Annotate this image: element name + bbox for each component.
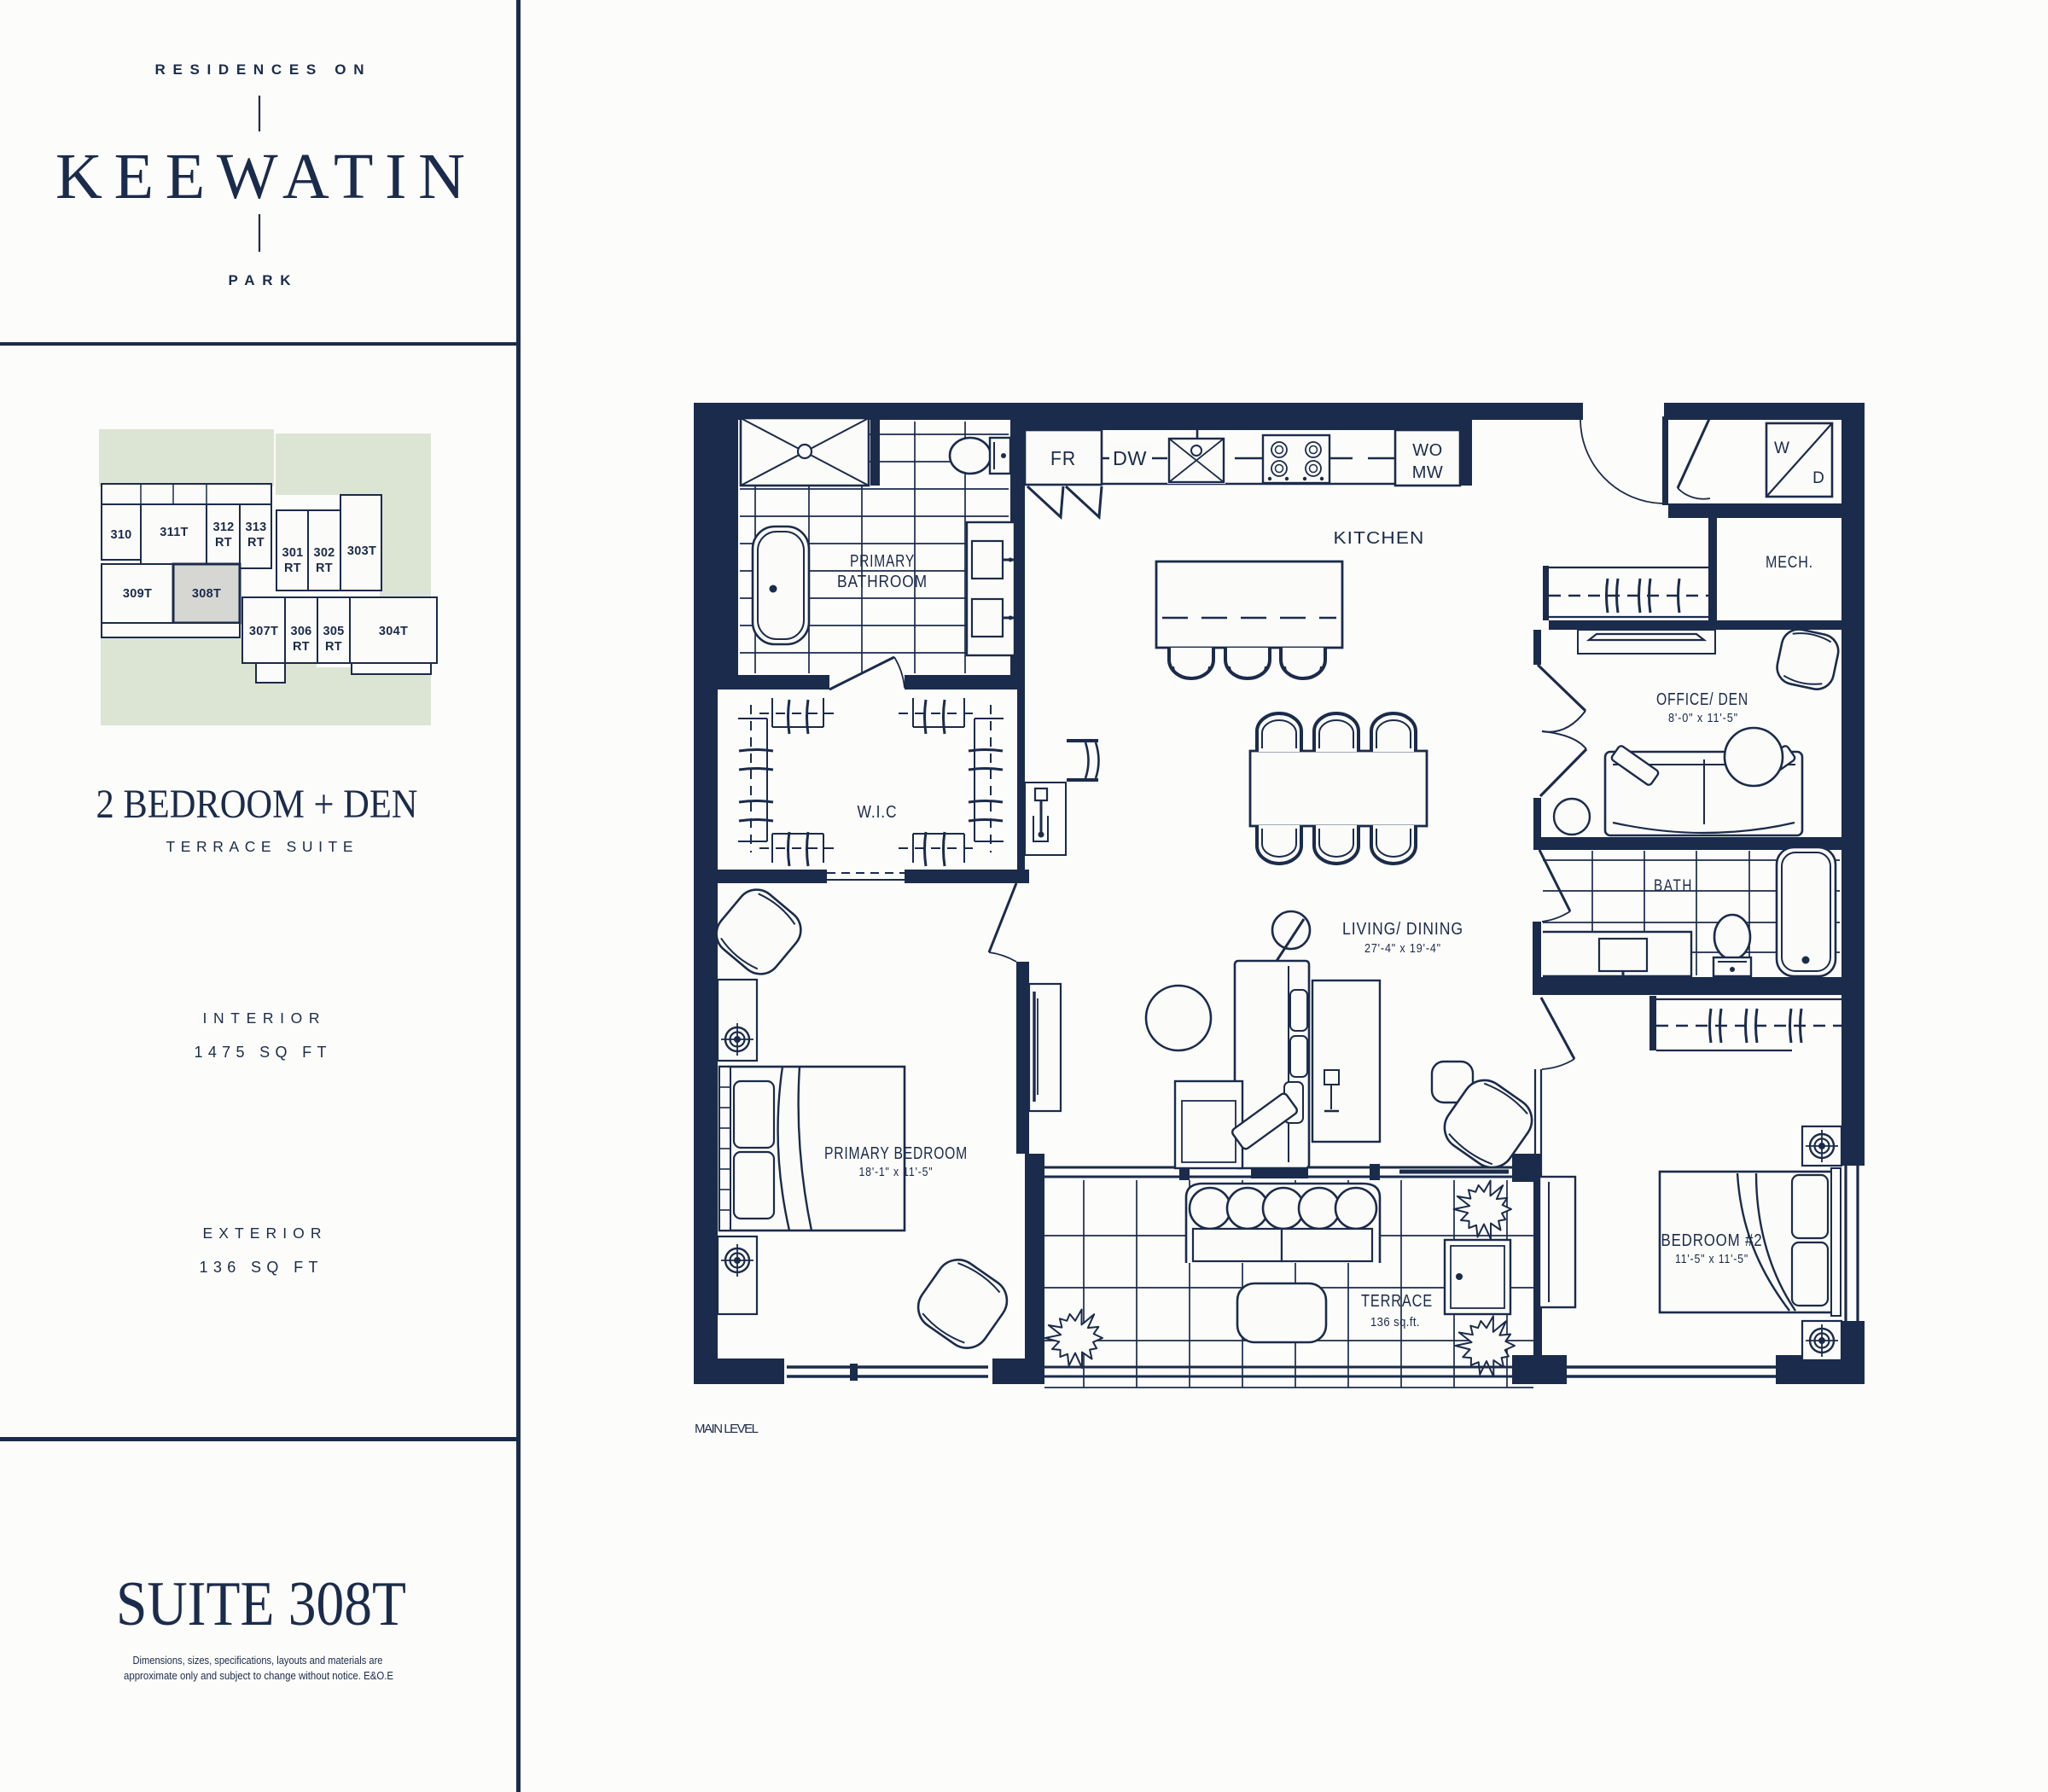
svg-text:303T: 303T [347,544,376,558]
svg-text:TERRACE: TERRACE [1361,1292,1433,1311]
svg-text:MW: MW [1412,463,1444,482]
svg-text:308T: 308T [192,587,221,601]
svg-text:W: W [1774,439,1789,457]
svg-text:SUITE 308T: SUITE 308T [116,1569,406,1639]
svg-text:BEDROOM #2: BEDROOM #2 [1661,1231,1763,1250]
svg-text:301: 301 [282,546,303,560]
svg-text:RT: RT [247,536,265,550]
svg-text:27'-4" x 19'-4": 27'-4" x 19'-4" [1364,941,1441,956]
svg-text:DW: DW [1113,447,1147,469]
svg-text:LIVING/ DINING: LIVING/ DINING [1342,920,1463,939]
svg-text:136 sq.ft.: 136 sq.ft. [1370,1315,1420,1329]
svg-text:PRIMARY: PRIMARY [850,552,915,571]
svg-text:BATHROOM: BATHROOM [837,573,928,591]
svg-text:311T: 311T [160,526,188,539]
svg-text:KITCHEN: KITCHEN [1334,529,1425,548]
svg-text:11'-5" x 11'-5": 11'-5" x 11'-5" [1675,1252,1748,1266]
svg-text:Dimensions, sizes, specificati: Dimensions, sizes, specifications, layou… [133,1654,383,1667]
svg-text:MECH.: MECH. [1766,554,1813,572]
svg-text:304T: 304T [379,625,408,638]
svg-text:WO: WO [1412,441,1442,460]
svg-text:310: 310 [110,528,131,542]
svg-text:OFFICE/ DEN: OFFICE/ DEN [1656,690,1748,709]
svg-text:307T: 307T [249,625,278,638]
svg-text:306: 306 [290,625,311,638]
svg-text:RT: RT [284,561,301,575]
svg-text:302: 302 [313,546,335,560]
svg-text:1475 SQ FT: 1475 SQ FT [195,1044,327,1061]
svg-text:BATH: BATH [1654,877,1693,895]
svg-text:2 BEDROOM + DEN: 2 BEDROOM + DEN [96,782,418,827]
svg-text:approximate only and subject t: approximate only and subject to change w… [124,1669,393,1682]
svg-text:RT: RT [215,536,232,550]
svg-text:136 SQ FT: 136 SQ FT [200,1259,318,1276]
svg-text:309T: 309T [123,587,152,601]
svg-text:RT: RT [325,640,342,654]
svg-text:D: D [1812,469,1824,487]
svg-text:8'-0" x 11'-5": 8'-0" x 11'-5" [1668,711,1738,725]
svg-text:305: 305 [323,625,344,638]
svg-text:W.I.C: W.I.C [858,803,898,822]
svg-text:KEEWATIN: KEEWATIN [55,141,465,212]
svg-text:RT: RT [316,561,333,575]
svg-text:313: 313 [245,521,266,534]
svg-text:PRIMARY BEDROOM: PRIMARY BEDROOM [824,1144,968,1163]
svg-text:FR: FR [1050,447,1076,469]
svg-text:312: 312 [212,521,234,534]
svg-text:RT: RT [293,640,310,654]
svg-text:18'-1" x 11'-5": 18'-1" x 11'-5" [859,1165,934,1179]
svg-text:MAIN LEVEL: MAIN LEVEL [695,1422,759,1436]
